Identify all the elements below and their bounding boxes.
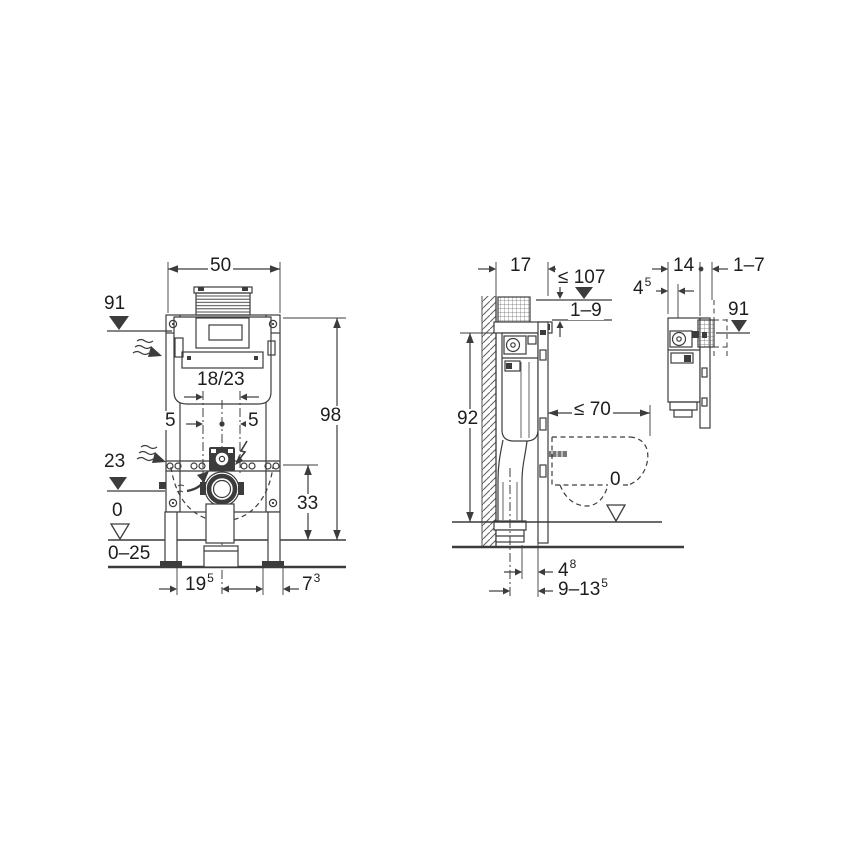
foot-left-label: 195 bbox=[183, 575, 216, 594]
floor-zero-side-label: 0 bbox=[608, 470, 623, 489]
supply-left-label: 5 bbox=[163, 411, 178, 430]
plate-pocket-label: 45 bbox=[631, 279, 653, 298]
adjust-range-label: 1–9 bbox=[568, 301, 604, 320]
foot-dimension bbox=[159, 568, 299, 595]
max-height-label: ≤ 107 bbox=[556, 268, 607, 287]
floor-range-label: 0–25 bbox=[106, 544, 152, 563]
foot-right-label: 73 bbox=[300, 575, 322, 594]
cistern-front bbox=[174, 317, 271, 404]
drain-outlet bbox=[200, 472, 244, 506]
plate-height-marker-detail bbox=[716, 320, 750, 333]
drain-bend-box bbox=[204, 546, 238, 567]
supply-right-label: 5 bbox=[246, 411, 261, 430]
floor-zero-marker-side bbox=[607, 505, 625, 521]
bowl-outline-side bbox=[552, 437, 648, 506]
wall-hatch bbox=[482, 296, 496, 547]
frame-height-label: 98 bbox=[318, 406, 343, 425]
outlet-height-label: 23 bbox=[102, 452, 127, 471]
pipe-offset-label: 48 bbox=[556, 561, 578, 580]
frame-rail-side bbox=[538, 322, 548, 543]
depth-label: 17 bbox=[508, 256, 533, 275]
plate-height-marker bbox=[107, 316, 172, 331]
plate-height-detail-label: 91 bbox=[726, 300, 751, 319]
floor-zero-label: 0 bbox=[110, 501, 125, 520]
outlet-offset-label: 33 bbox=[295, 494, 320, 513]
bolt-spacing-label: 18/23 bbox=[195, 370, 247, 389]
cistern-side bbox=[502, 333, 538, 441]
line-art bbox=[0, 0, 868, 868]
threaded-rod-icon bbox=[548, 451, 567, 457]
plate-pocket-dimension bbox=[656, 284, 694, 318]
drain-duct bbox=[206, 504, 234, 543]
pipe-range-label: 9–135 bbox=[556, 580, 610, 599]
protection-box-side bbox=[498, 297, 530, 322]
max-height-marker bbox=[536, 287, 612, 300]
wall-finish-range-label: 1–7 bbox=[731, 256, 767, 275]
plate-height-label: 91 bbox=[102, 294, 127, 313]
bowl-projection-label: ≤ 70 bbox=[572, 400, 613, 419]
detail-view-drawing bbox=[652, 262, 750, 428]
center-dot-icon bbox=[219, 421, 224, 426]
cistern-depth-label: 14 bbox=[671, 256, 696, 275]
frame-width-label: 50 bbox=[208, 256, 233, 275]
protection-box-front bbox=[194, 287, 252, 315]
outlet-height-marker bbox=[107, 477, 166, 491]
floor-zero-marker bbox=[111, 524, 129, 539]
technical-drawing-page: 50 91 98 18/23 5 5 23 0 0–25 33 195 73 1… bbox=[0, 0, 868, 868]
pipe-offset-dimensions bbox=[489, 543, 553, 597]
frame-height-side-label: 92 bbox=[455, 409, 480, 428]
water-supply-fitting bbox=[209, 447, 235, 471]
